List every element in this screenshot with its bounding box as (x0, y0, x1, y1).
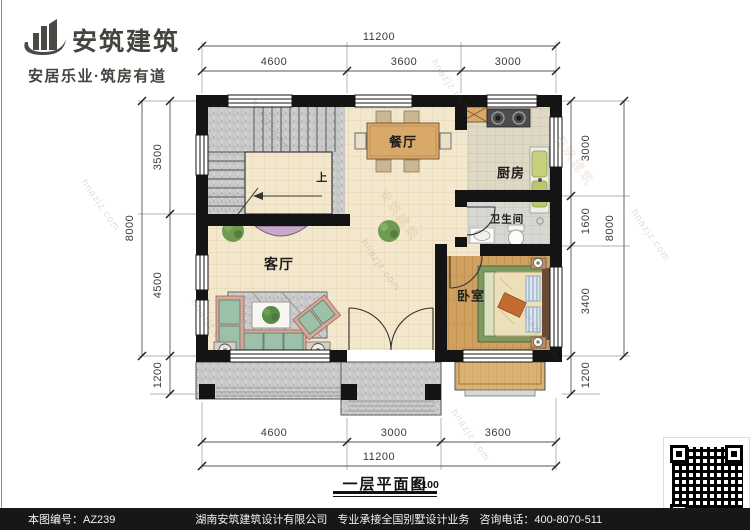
dim-right-3000: 3000 (580, 135, 592, 161)
plan-scale: 1:100 (412, 479, 439, 491)
dim-bottom-3600: 3600 (485, 427, 511, 439)
footer-bar: 本图编号：AZ239 湖南安筑建筑设计有限公司 专业承接全国别墅设计业务 咨询电… (0, 508, 750, 530)
footer-service: 专业承接全国别墅设计业务 (337, 511, 469, 527)
dim-left-total: 8000 (124, 215, 136, 241)
dim-bottom-total: 11200 (363, 451, 395, 463)
portico-column-right (425, 384, 441, 400)
dim-left-1200: 1200 (152, 362, 164, 388)
room-label-bathroom: 卫生间 (490, 212, 525, 227)
dim-right-total: 8000 (604, 215, 616, 241)
qr-finder-topright (725, 445, 743, 463)
dim-bottom-4600: 4600 (261, 427, 287, 439)
qr-finder-topleft (670, 445, 688, 463)
footer-company: 湖南安筑建筑设计有限公司 (195, 511, 327, 527)
porch-terrace (196, 362, 441, 415)
dim-top-3000: 3000 (495, 56, 521, 68)
kitchen-stove (487, 109, 530, 127)
room-label-living: 客厅 (264, 254, 294, 274)
dim-left-3500: 3500 (152, 144, 164, 170)
title-underline-thin (333, 496, 437, 497)
toilet (508, 225, 524, 246)
dim-left-4500: 4500 (152, 272, 164, 298)
stair-up-label: 上 (316, 169, 328, 185)
title-underline-thick (333, 491, 437, 494)
nightstand-top (531, 258, 546, 269)
porch-column (199, 384, 215, 399)
dim-right-1200: 1200 (580, 362, 592, 388)
bedroom-balcony (455, 362, 545, 396)
dim-top-3600: 3600 (391, 56, 417, 68)
dim-bottom-3000: 3000 (381, 427, 407, 439)
coffee-table (252, 302, 290, 328)
kitchen-sink (530, 147, 549, 213)
portico-column-left (341, 384, 357, 400)
dim-right-1600: 1600 (580, 208, 592, 234)
room-label-kitchen: 厨房 (497, 163, 525, 182)
staircase (208, 107, 345, 214)
footer-plan-number: 本图编号：AZ239 (28, 511, 115, 527)
dim-top-total: 11200 (363, 31, 395, 43)
dim-right-3400: 3400 (580, 288, 592, 314)
room-label-bedroom: 卧室 (457, 286, 485, 305)
footer-phone: 咨询电话：400-8070-511 (479, 511, 602, 527)
room-label-dining: 餐厅 (389, 132, 417, 151)
dim-top-4600: 4600 (261, 56, 287, 68)
